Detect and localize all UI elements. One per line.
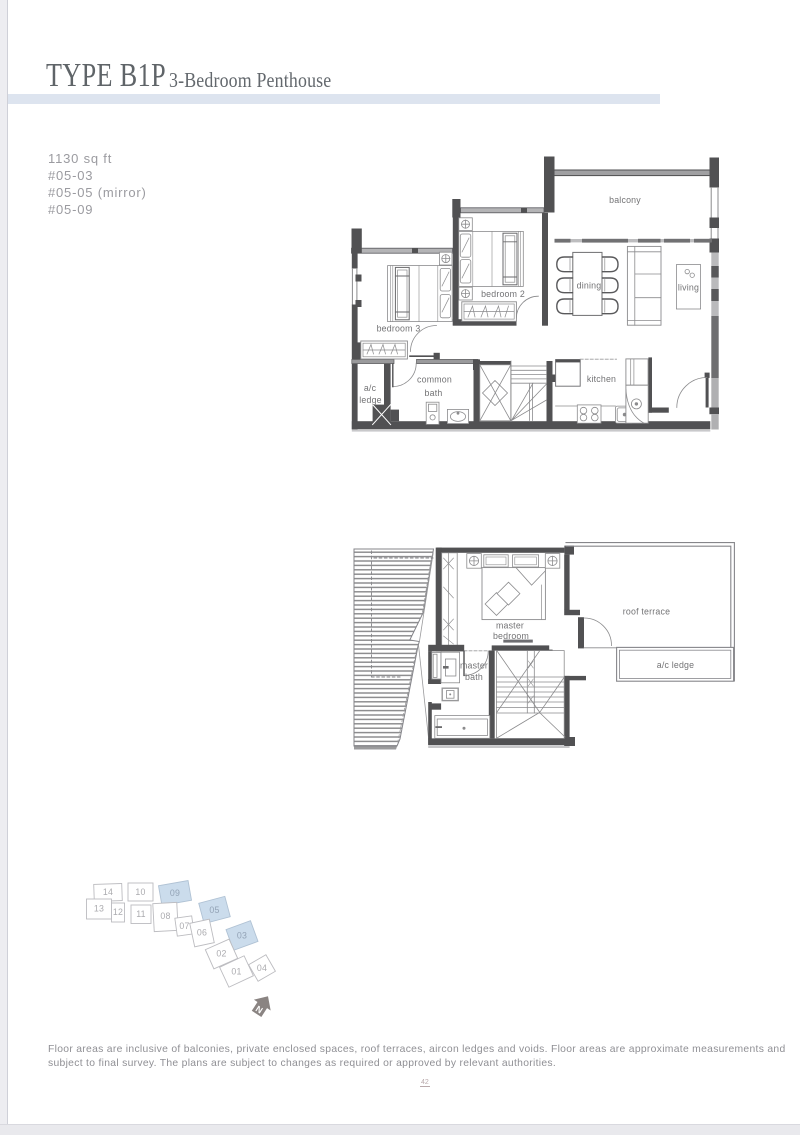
- svg-text:06: 06: [197, 928, 207, 938]
- svg-text:09: 09: [170, 888, 180, 898]
- svg-text:a/c: a/c: [364, 383, 377, 393]
- svg-text:kitchen: kitchen: [587, 374, 616, 384]
- svg-text:roof terrace: roof terrace: [623, 607, 670, 617]
- svg-text:common: common: [417, 375, 452, 385]
- svg-text:master: master: [496, 621, 524, 631]
- svg-text:balcony: balcony: [609, 195, 641, 205]
- svg-text:05: 05: [209, 905, 219, 915]
- svg-text:bedroom 3: bedroom 3: [377, 324, 421, 334]
- svg-text:02: 02: [216, 949, 226, 959]
- svg-text:14: 14: [103, 887, 113, 897]
- svg-text:10: 10: [135, 887, 145, 897]
- svg-text:master: master: [460, 661, 488, 671]
- svg-text:bath: bath: [425, 388, 443, 398]
- svg-text:11: 11: [136, 909, 146, 919]
- svg-text:01: 01: [231, 967, 241, 977]
- svg-text:living: living: [678, 283, 699, 293]
- svg-text:a/c ledge: a/c ledge: [657, 660, 695, 670]
- svg-text:07: 07: [179, 921, 189, 931]
- svg-text:bedroom 2: bedroom 2: [481, 289, 525, 299]
- svg-text:dining: dining: [577, 281, 602, 291]
- svg-text:08: 08: [160, 911, 170, 921]
- svg-text:bath: bath: [465, 672, 483, 682]
- svg-text:bedroom: bedroom: [493, 631, 529, 641]
- svg-text:03: 03: [237, 931, 247, 941]
- svg-text:12: 12: [113, 907, 123, 917]
- svg-text:04: 04: [257, 963, 267, 973]
- svg-text:13: 13: [94, 904, 104, 914]
- svg-text:ledge: ledge: [359, 395, 382, 405]
